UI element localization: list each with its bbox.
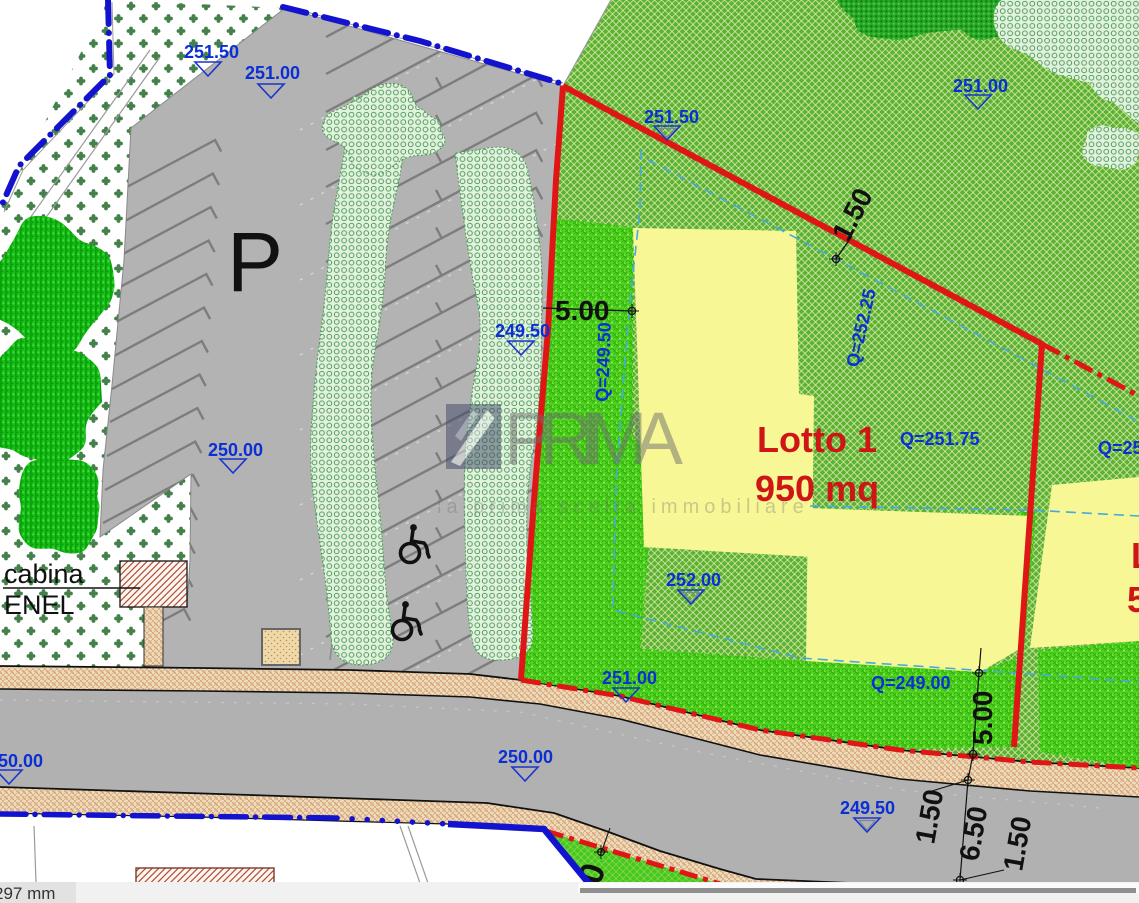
svg-text:251.00: 251.00 [953, 76, 1008, 96]
svg-text:P: P [227, 215, 283, 309]
svg-text:249.50: 249.50 [840, 798, 895, 818]
svg-text:251.50: 251.50 [644, 107, 699, 127]
svg-text:Q=249.50: Q=249.50 [592, 322, 615, 402]
svg-text:Lotto 2: Lotto 2 [1131, 535, 1139, 576]
svg-text:250.00: 250.00 [498, 747, 553, 767]
svg-text:cabina: cabina [4, 559, 85, 589]
svg-text:la prima scelta immobiliare: la prima scelta immobiliare [437, 496, 809, 518]
svg-text:Q=251.00: Q=251.00 [1098, 438, 1139, 458]
svg-text:5.00: 5.00 [967, 691, 998, 746]
svg-text:252.00: 252.00 [666, 570, 721, 590]
svg-text:5.00: 5.00 [555, 295, 610, 326]
svg-text:249.50: 249.50 [495, 321, 550, 341]
svg-text:550 mq: 550 mq [1127, 579, 1139, 620]
svg-text:Q=249.00: Q=249.00 [871, 673, 951, 693]
svg-text:251.50: 251.50 [184, 42, 239, 62]
svg-text:297 mm: 297 mm [0, 884, 55, 903]
svg-text:PRIMA: PRIMA [504, 397, 686, 480]
svg-text:251.00: 251.00 [602, 668, 657, 688]
svg-text:250.00: 250.00 [0, 751, 43, 771]
svg-text:251.00: 251.00 [245, 63, 300, 83]
svg-text:Q=251.75: Q=251.75 [900, 429, 980, 449]
svg-text:950 mq: 950 mq [755, 468, 879, 509]
svg-text:Lotto 1: Lotto 1 [757, 419, 877, 460]
svg-text:ENEL: ENEL [4, 590, 75, 620]
svg-text:250.00: 250.00 [208, 440, 263, 460]
